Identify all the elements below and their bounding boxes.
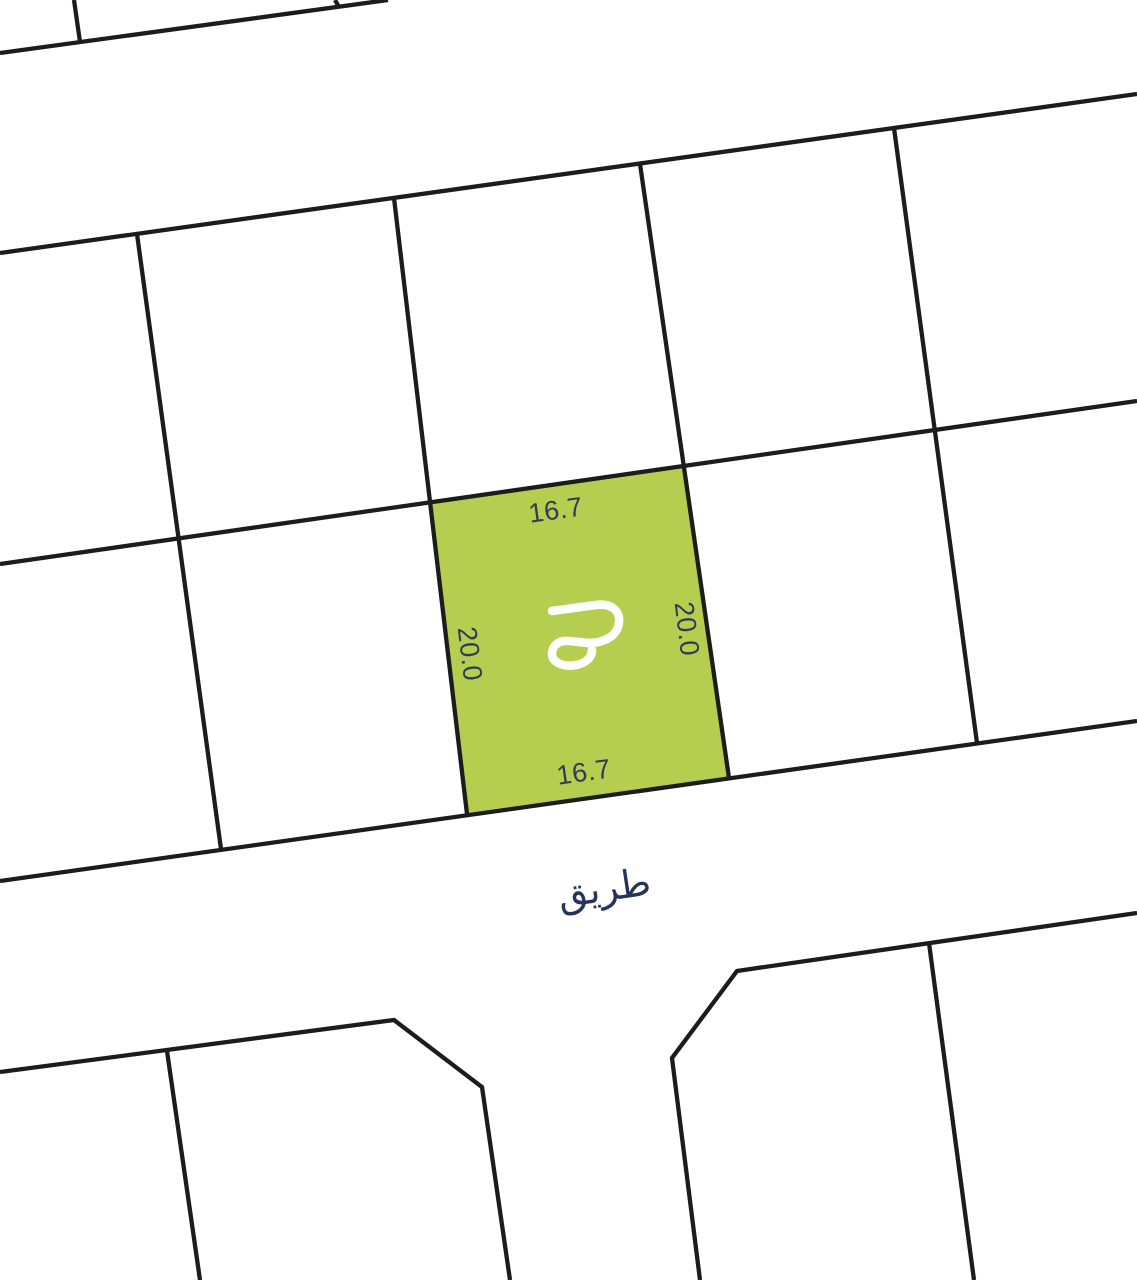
road-label: طريق [555, 859, 654, 917]
cadastral-map-canvas[interactable]: 16.7 16.7 20.0 20.0 طريق [0, 0, 1137, 1280]
boundary-top-road-line [0, 0, 388, 53]
boundary-road-bottom-right [672, 913, 1137, 1280]
boundary-top-tick-1 [74, 0, 80, 42]
boundary-upper-block-top [0, 94, 1137, 253]
boundary-road-bottom-left [0, 1020, 510, 1280]
parcel-map-svg: 16.7 16.7 20.0 20.0 طريق [0, 0, 1137, 1280]
boundary-bottom-vertical-1 [167, 1051, 200, 1280]
boundary-bottom-vertical-2 [929, 943, 974, 1280]
